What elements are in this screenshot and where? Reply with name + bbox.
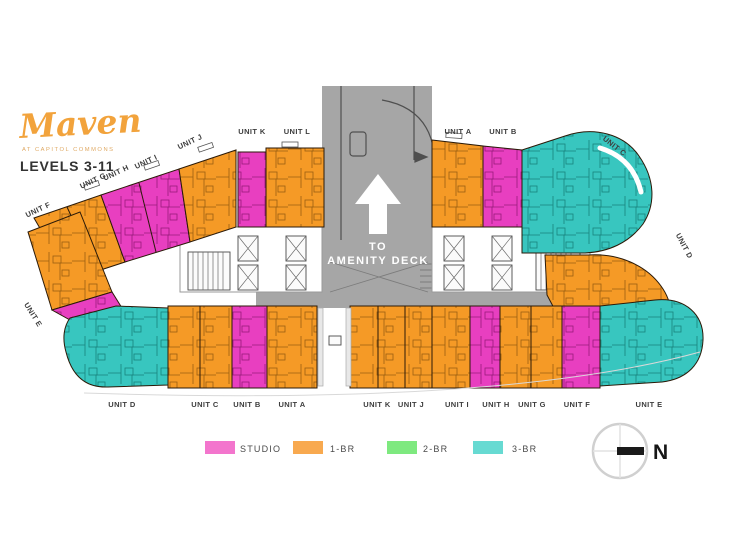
stairs-icon [188, 252, 230, 290]
unit-block-studio-k [238, 152, 266, 227]
legend-swatch-3br [473, 441, 503, 454]
unit-label: UNIT K [363, 400, 391, 409]
unit-label: UNIT B [233, 400, 261, 409]
unit-label: UNIT L [284, 127, 311, 136]
logo: Maven [17, 101, 142, 146]
unit-label: UNIT K [238, 127, 266, 136]
amenity-deck-label-line2: AMENITY DECK [327, 255, 429, 267]
unit-label: UNIT C [191, 400, 219, 409]
unit-label: UNIT D [108, 400, 136, 409]
unit-block-3br-c [522, 132, 652, 253]
unit-label: UNIT J [398, 400, 424, 409]
amenity-deck-label-line1: TO [369, 241, 387, 253]
unit-label: UNIT E [22, 301, 44, 329]
unit-block-1br-i [432, 306, 470, 388]
legend-label: STUDIO [240, 444, 281, 454]
unit-block-studio-b2 [232, 306, 267, 388]
legend-label: 2-BR [423, 444, 448, 454]
unit-block-1br-l [266, 148, 324, 227]
legend-swatch-2br [387, 441, 417, 454]
unit-block-3br-e [600, 300, 703, 386]
unit-block-1br-j [179, 150, 236, 242]
legend: STUDIO 1-BR 2-BR 3-BR [205, 441, 537, 454]
legend-label: 1-BR [330, 444, 355, 454]
north-label: N [653, 441, 668, 464]
unit-label: UNIT H [482, 400, 509, 409]
unit-label: UNIT D [674, 232, 695, 261]
legend-swatch-1br [293, 441, 323, 454]
unit-label: UNIT A [278, 400, 305, 409]
unit-block-1br-a2 [267, 306, 317, 388]
unit-block-studio-b [483, 146, 522, 227]
unit-label: UNIT G [518, 400, 546, 409]
lower-lobby [318, 308, 351, 386]
unit-label: UNIT E [636, 400, 663, 409]
floor-plan-canvas: Maven AT CAPITOL COMMONS LEVELS 3-11 TO … [0, 0, 746, 557]
legend-label: 3-BR [512, 444, 537, 454]
unit-block-1br-kj [350, 306, 432, 388]
brand-block: Maven AT CAPITOL COMMONS LEVELS 3-11 [17, 101, 142, 174]
unit-label: UNIT I [445, 400, 469, 409]
legend-swatch-studio [205, 441, 235, 454]
unit-label: UNIT F [564, 400, 591, 409]
north-compass-icon: N [593, 424, 668, 478]
unit-block-1br-a [432, 140, 483, 227]
logo-subtitle: AT CAPITOL COMMONS [22, 147, 115, 153]
unit-block-studio-h [470, 306, 500, 388]
unit-label: UNIT A [444, 127, 471, 136]
unit-label: UNIT B [489, 127, 517, 136]
unit-block-3br-bottom-left [64, 306, 168, 387]
